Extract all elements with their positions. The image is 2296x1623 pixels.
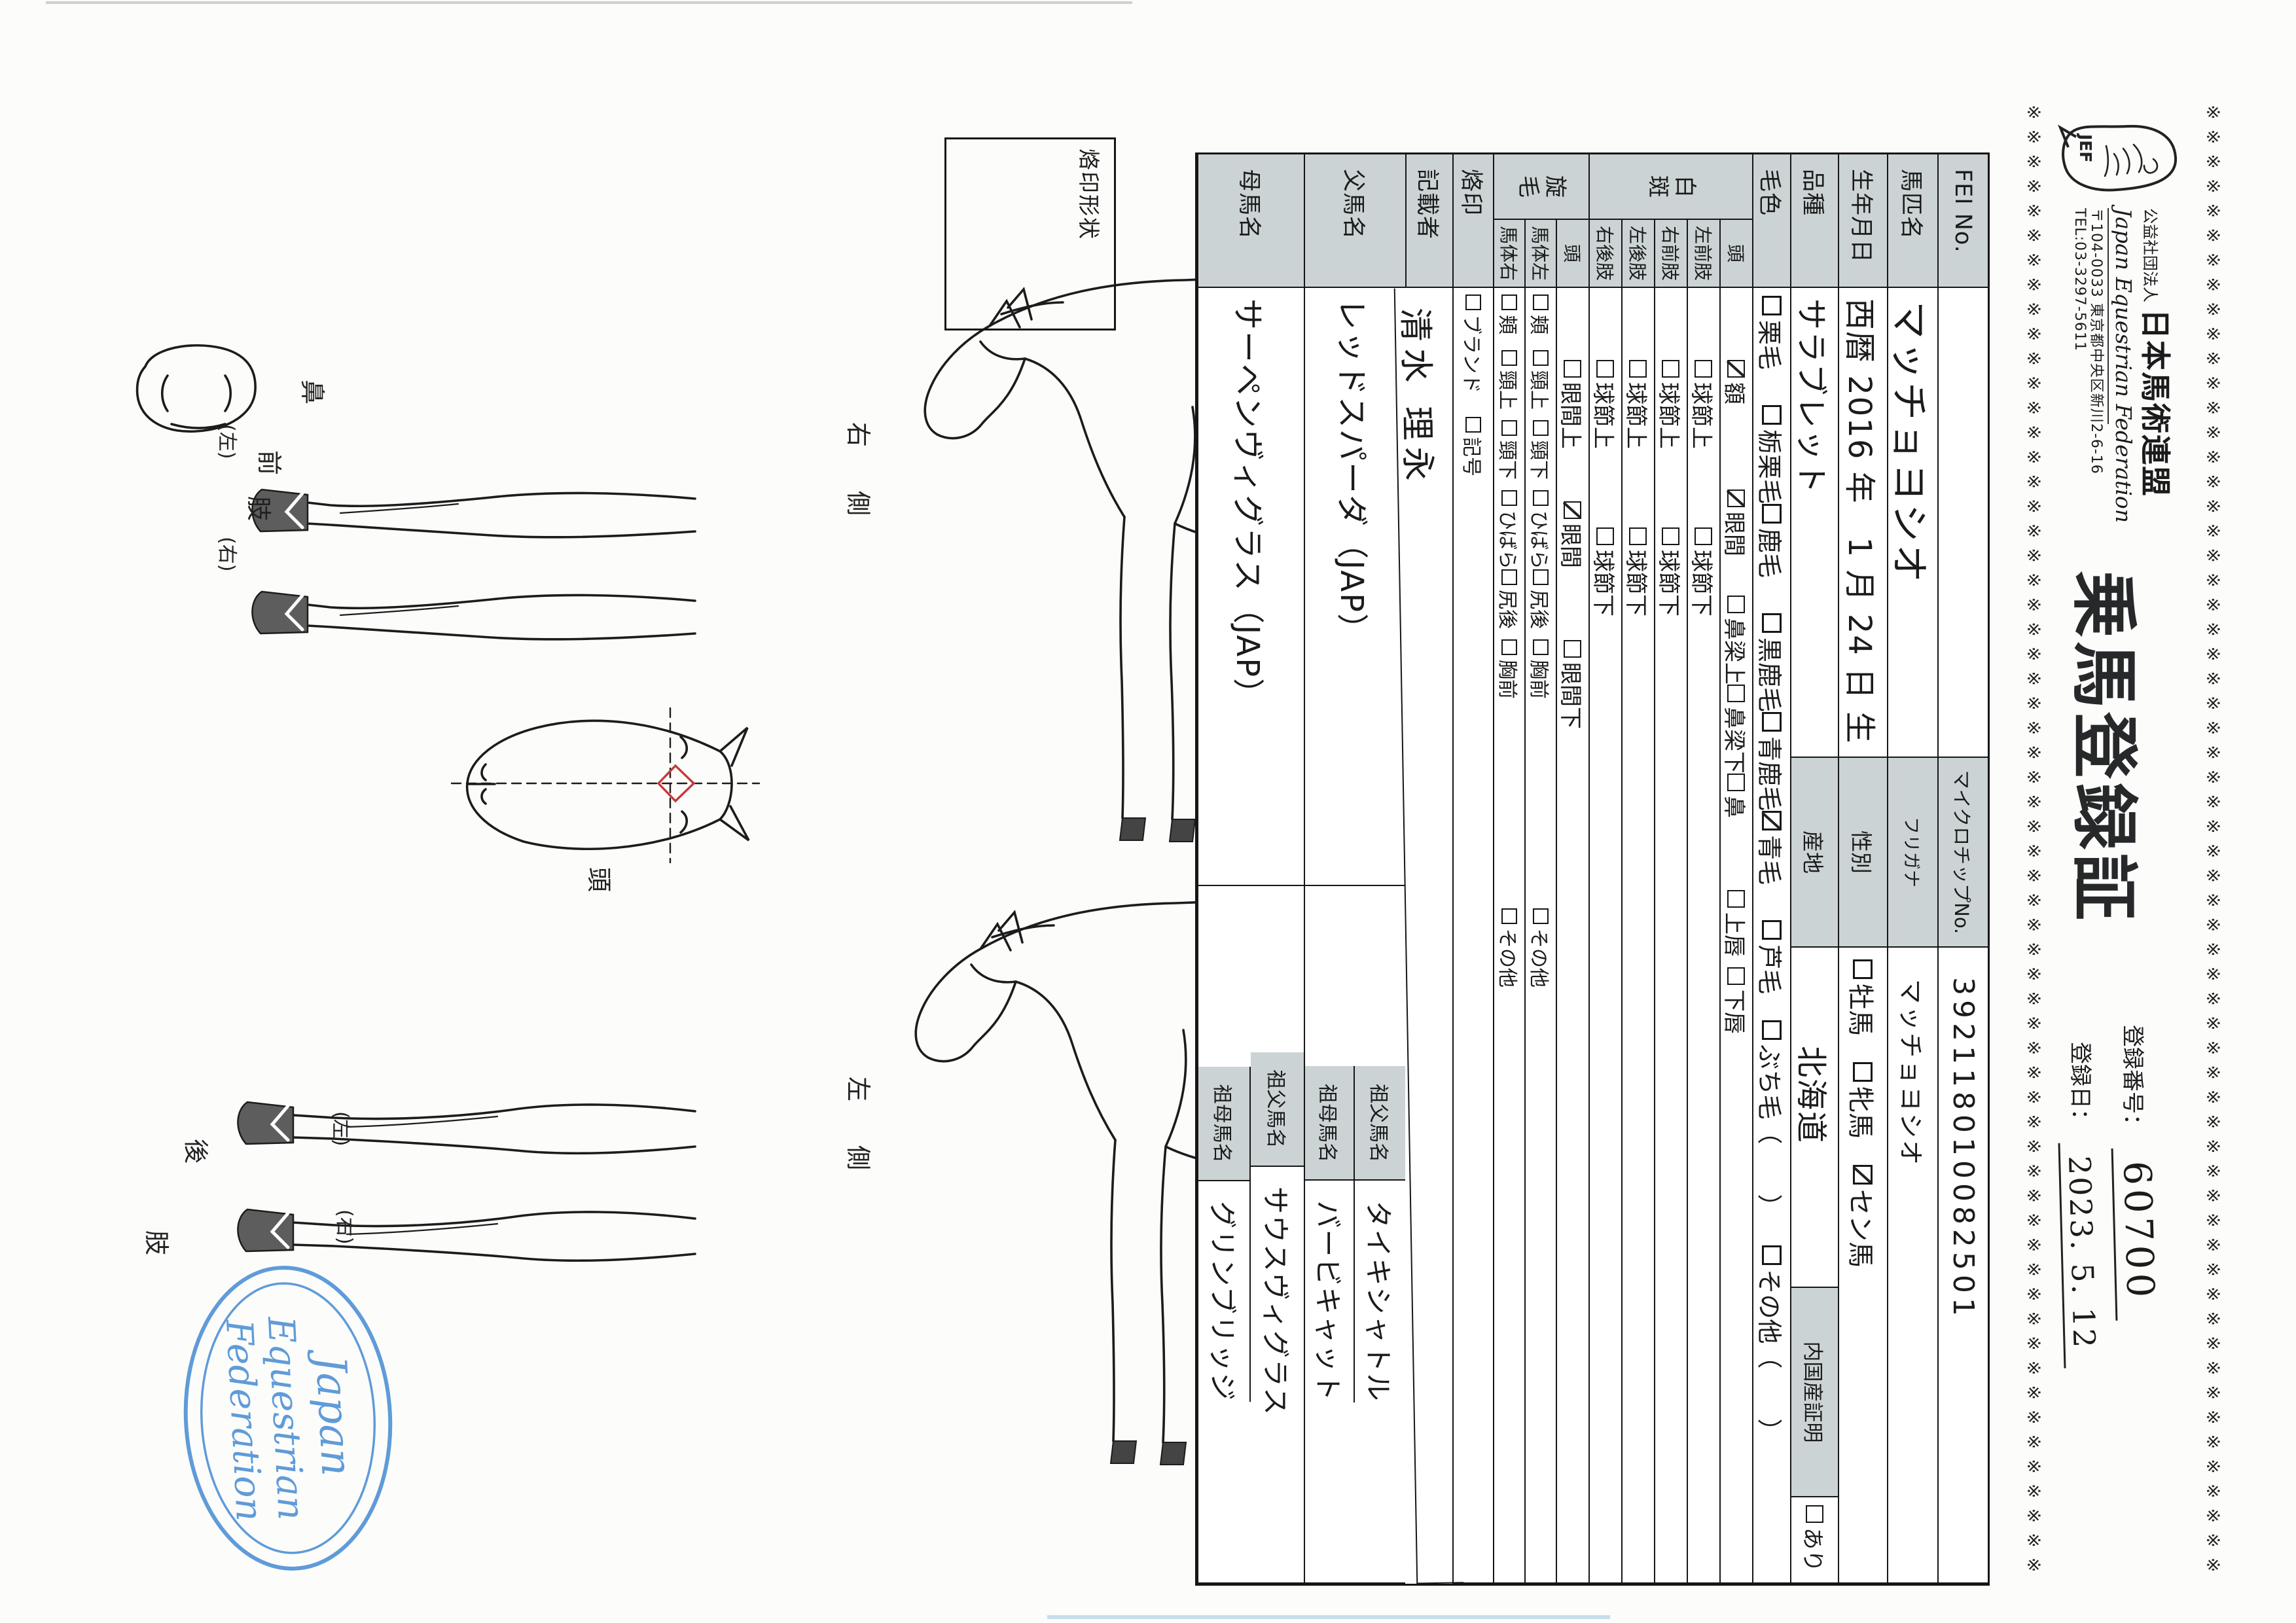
horse-name-sublabel-1: フリガナ xyxy=(1887,758,1937,948)
checkbox-option-ひばら: ひばら xyxy=(1526,490,1555,569)
diagram-label-後: 後 xyxy=(180,1139,216,1164)
checkbox-option-牝馬: 牝馬 xyxy=(1844,1062,1882,1139)
checkbox-unchecked xyxy=(1533,420,1549,436)
table-row-white-marks-head: 頭額眼間鼻梁上鼻梁下鼻上唇下唇 xyxy=(1719,154,1752,1584)
dam-bottom-value: グリンブリッジ xyxy=(1198,1181,1251,1402)
table-row-recorder: 記載者清水 理永 xyxy=(1405,154,1452,1584)
table-row-white-marks-right-fore: 右前肢球節上球節下 xyxy=(1654,154,1687,1584)
checkbox-checked xyxy=(1762,811,1782,830)
org-address: 〒104-0033 東京都中央区新川2-6-16 xyxy=(2087,208,2104,523)
checkbox-unchecked xyxy=(1728,596,1746,613)
checkbox-option-球節下: 球節下 xyxy=(1655,527,1687,616)
row-label-coat-color: 毛色 xyxy=(1752,154,1790,288)
header-rule xyxy=(2108,208,2109,424)
checkbox-option-眼間上: 眼間上 xyxy=(1557,360,1589,449)
breed-sublabel-3: 内国産証明 xyxy=(1790,1288,1838,1497)
checkbox-unchecked xyxy=(1762,296,1782,315)
table-row-breed: 品種サラブレット産地北海道内国産証明あり xyxy=(1790,154,1838,1584)
breed-sublabel-1: 産地 xyxy=(1790,758,1838,948)
checkbox-option-鹿毛: 鹿毛 xyxy=(1754,504,1790,578)
table-row-dam: 母馬名サーペンヴィグラス（JAP）祖父馬名サウスヴィグラス祖母馬名グリンブリッジ xyxy=(1197,154,1304,1584)
checkbox-option-青鹿毛: 青鹿毛 xyxy=(1754,712,1790,811)
branding-shape-label: 烙印形状 xyxy=(1075,149,1106,240)
checkbox-unchecked xyxy=(1501,490,1517,506)
row-label-whorl-body-right: 馬体右 xyxy=(1493,220,1524,288)
diagram-label-(右): (右) xyxy=(332,1209,361,1244)
checkbox-option-ブランド: ブランド xyxy=(1459,294,1488,393)
org-name-en: Japan Equestrian Federation xyxy=(2111,208,2136,523)
diagram-label-頭: 頭 xyxy=(583,867,619,892)
white-marks-left-hind-options: 球節上球節下 xyxy=(1621,288,1654,1584)
checkbox-unchecked xyxy=(1762,504,1782,524)
row-label-whorl-body-left: 馬体左 xyxy=(1524,220,1556,288)
checkbox-unchecked xyxy=(1501,908,1517,924)
checkbox-unchecked xyxy=(1728,774,1746,791)
row-label-fei-no: FEI No. xyxy=(1937,154,1988,288)
checkbox-unchecked xyxy=(1728,890,1746,908)
row-label-white-marks-left-hind: 左後肢 xyxy=(1621,220,1654,288)
diagram-label-側: 側 xyxy=(842,491,878,516)
certificate-portrait-content: ※※※※※※※※※※※※※※※※※※※※※※※※※※※※※※※※※※※※※※※※… xyxy=(0,0,2296,1623)
checkbox-unchecked xyxy=(1806,1505,1823,1523)
checkbox-option-栗毛: 栗毛 xyxy=(1754,296,1790,370)
table-row-whorl-body-right: 馬体右頬頸上頸下ひばら尻後胸前その他 xyxy=(1493,154,1524,1584)
row-label-white-marks-left-fore: 左前肢 xyxy=(1687,220,1719,288)
checkbox-unchecked xyxy=(1762,712,1782,732)
table-row-birth-date: 生年月日西暦 2016 年 1 月 24 日 生性別牡馬牝馬セン馬 xyxy=(1838,154,1887,1584)
checkbox-option-黒鹿毛: 黒鹿毛 xyxy=(1754,613,1790,712)
org-name: 日本馬術連盟 xyxy=(2138,309,2173,497)
checkbox-option-球節上: 球節上 xyxy=(1688,360,1720,449)
checkbox-checked xyxy=(1854,1165,1873,1185)
diagram-label-前: 前 xyxy=(253,450,289,475)
fei-no-empty-cell xyxy=(1937,288,1988,758)
checkbox-checked xyxy=(1728,360,1746,378)
checkbox-option-尻後: 尻後 xyxy=(1526,569,1555,629)
dam-top-value: サウスヴィグラス xyxy=(1251,1167,1304,1416)
checkbox-option-セン馬: セン馬 xyxy=(1844,1165,1882,1268)
table-row-whorl-body-left: 馬体左頬頸上頸下ひばら尻後胸前その他 xyxy=(1524,154,1556,1584)
registration-number-value: 60700 xyxy=(2111,1147,2164,1320)
row-label-breed: 品種 xyxy=(1790,154,1838,288)
dam-top-sublabel: 祖父馬名 xyxy=(1251,1052,1304,1167)
jef-logo-text: JEF xyxy=(2076,133,2095,162)
checkbox-unchecked xyxy=(1762,613,1782,633)
checkbox-option-球節上: 球節上 xyxy=(1623,360,1655,449)
checkbox-unchecked xyxy=(1501,294,1517,310)
row-label-white-marks-head: 頭 xyxy=(1719,220,1752,288)
checkbox-option-その他（ ）: その他（ ） xyxy=(1754,1245,1790,1444)
checkbox-option-上唇: 上唇 xyxy=(1721,890,1753,957)
checkbox-unchecked xyxy=(1728,967,1746,985)
whorl-head-options: 眼間上眼間眼間下 xyxy=(1556,288,1588,1584)
sire-bottom-sublabel: 祖母馬名 xyxy=(1305,1066,1355,1181)
checkbox-option-頸上: 頸上 xyxy=(1526,350,1555,410)
checkbox-unchecked xyxy=(1597,527,1615,545)
checkbox-option-胸前: 胸前 xyxy=(1526,639,1555,699)
row-label-brand: 烙印 xyxy=(1452,154,1493,288)
birth-date-sublabel-1: 性別 xyxy=(1838,758,1887,948)
checkbox-option-球節下: 球節下 xyxy=(1623,527,1655,616)
registration-date-value: 2023. 5. 12 xyxy=(2058,1142,2103,1368)
sire-pedigree-split: 祖父馬名タイキシャトル祖母馬名バービキャット xyxy=(1304,886,1405,1584)
checkbox-option-あり: あり xyxy=(1799,1505,1831,1572)
birth-date-options: 牡馬牝馬セン馬 xyxy=(1838,948,1887,1584)
checkbox-unchecked xyxy=(1501,639,1517,655)
table-row-white-marks-right-hind: 右後肢球節上球節下 xyxy=(1588,154,1621,1584)
checkbox-option-牡馬: 牡馬 xyxy=(1844,959,1882,1036)
registration-number-label: 登録番号： xyxy=(2113,1025,2151,1136)
registration-date-line: 登録日： 2023. 5. 12 xyxy=(2061,1042,2100,1368)
coat-color-options: 栗毛栃栗毛鹿毛黒鹿毛青鹿毛青毛芦毛ぶち毛（ ）その他（ ） xyxy=(1752,288,1790,1584)
sire-bottom-value: バービキャット xyxy=(1305,1181,1355,1402)
checkbox-option-頸下: 頸下 xyxy=(1495,420,1524,480)
checkbox-option-頸上: 頸上 xyxy=(1495,350,1524,410)
org-tel: TEL:03-3297-5611 xyxy=(2071,208,2087,523)
checkbox-option-頬: 頬 xyxy=(1495,294,1524,334)
checkbox-option-鼻梁下: 鼻梁下 xyxy=(1721,685,1753,774)
checkbox-option-下唇: 下唇 xyxy=(1721,967,1753,1034)
table-row-coat-color: 毛色栗毛栃栗毛鹿毛黒鹿毛青鹿毛青毛芦毛ぶち毛（ ）その他（ ） xyxy=(1752,154,1790,1584)
dam-pedigree-split: 祖父馬名サウスヴィグラス祖母馬名グリンブリッジ xyxy=(1197,886,1304,1584)
perforation-line-top: ※※※※※※※※※※※※※※※※※※※※※※※※※※※※※※※※※※※※※※※※… xyxy=(2202,105,2223,1584)
checkbox-unchecked xyxy=(1854,959,1873,979)
breed-options: あり xyxy=(1790,1497,1838,1584)
diagram-label-(左): (左) xyxy=(215,424,243,459)
checkbox-option-芦毛: 芦毛 xyxy=(1754,920,1790,994)
certificate-title: 乗馬登録証 xyxy=(2061,571,2157,924)
checkbox-option-鼻: 鼻 xyxy=(1721,774,1753,818)
white-marks-right-hind-options: 球節上球節下 xyxy=(1588,288,1621,1584)
checkbox-option-額: 額 xyxy=(1721,360,1753,404)
registration-date-label: 登録日： xyxy=(2061,1042,2098,1131)
whorl-body-right-options: 頬頸上頸下ひばら尻後胸前その他 xyxy=(1493,288,1524,1584)
checkbox-unchecked xyxy=(1533,908,1549,924)
jef-logo: JEF xyxy=(2055,120,2179,196)
checkbox-option-球節下: 球節下 xyxy=(1590,527,1622,616)
diagram-label-(左): (左) xyxy=(329,1111,357,1146)
table-row-fei-no: FEI No.マイクロチップNo.392118010082501 xyxy=(1937,154,1988,1584)
stamp-line-1: Japan xyxy=(306,1347,361,1478)
sire-value: レッドスパーダ（JAP） xyxy=(1304,288,1405,886)
row-label-whorl-head: 頭 xyxy=(1556,220,1588,288)
dam-value: サーペンヴィグラス（JAP） xyxy=(1197,288,1304,886)
checkbox-unchecked xyxy=(1597,360,1615,378)
checkbox-unchecked xyxy=(1533,639,1549,655)
checkbox-option-眼間: 眼間 xyxy=(1557,501,1589,568)
checkbox-option-球節下: 球節下 xyxy=(1688,527,1720,616)
checkbox-option-頬: 頬 xyxy=(1526,294,1555,334)
checkbox-unchecked xyxy=(1533,569,1549,585)
perforation-line-bottom: ※※※※※※※※※※※※※※※※※※※※※※※※※※※※※※※※※※※※※※※※… xyxy=(2023,105,2043,1584)
checkbox-unchecked xyxy=(1564,640,1582,658)
fei-no-value: 392118010082501 xyxy=(1937,948,1988,1584)
checkbox-option-栃栗毛: 栃栗毛 xyxy=(1754,405,1790,504)
table-row-sire: 父馬名レッドスパーダ（JAP）祖父馬名タイキシャトル祖母馬名バービキャット xyxy=(1304,154,1405,1584)
checkbox-unchecked xyxy=(1762,920,1782,940)
horse-data-table: FEI No.マイクロチップNo.392118010082501馬匹名マッチョヨ… xyxy=(1195,152,1990,1586)
white-marks-right-fore-options: 球節上球節下 xyxy=(1654,288,1687,1584)
white-marks-head-options: 額眼間鼻梁上鼻梁下鼻上唇下唇 xyxy=(1719,288,1752,1584)
checkbox-option-胸前: 胸前 xyxy=(1495,639,1524,699)
dam-bottom-sublabel: 祖母馬名 xyxy=(1198,1067,1251,1181)
diagram-label-鼻: 鼻 xyxy=(296,380,332,404)
diagram-label-肢: 肢 xyxy=(141,1230,177,1255)
checkbox-option-頸下: 頸下 xyxy=(1526,420,1555,480)
checkbox-unchecked xyxy=(1762,1020,1782,1040)
checkbox-option-青毛: 青毛 xyxy=(1754,811,1790,885)
checkbox-option-その他: その他 xyxy=(1526,908,1555,988)
checkbox-unchecked xyxy=(1762,405,1782,425)
scanned-certificate-page: ※※※※※※※※※※※※※※※※※※※※※※※※※※※※※※※※※※※※※※※※… xyxy=(0,0,2296,1623)
diagram-label-右: 右 xyxy=(842,422,878,447)
sire-top-value: タイキシャトル xyxy=(1355,1181,1406,1402)
checkbox-unchecked xyxy=(1533,490,1549,506)
row-label-birth-date: 生年月日 xyxy=(1838,154,1887,288)
checkbox-option-眼間下: 眼間下 xyxy=(1557,640,1589,729)
checkbox-option-その他: その他 xyxy=(1495,908,1524,988)
checkbox-checked xyxy=(1564,501,1582,519)
row-label-sire: 父馬名 xyxy=(1304,154,1405,288)
diagram-label-左: 左 xyxy=(842,1077,878,1101)
checkbox-unchecked xyxy=(1854,1062,1873,1082)
table-row-horse-name: 馬匹名マッチョヨシオフリガナマッチョヨシオ xyxy=(1887,154,1937,1584)
row-label-horse-name: 馬匹名 xyxy=(1887,154,1937,288)
white-marks-left-fore-options: 球節上球節下 xyxy=(1687,288,1719,1584)
checkbox-option-鼻梁上: 鼻梁上 xyxy=(1721,596,1753,685)
checkbox-checked xyxy=(1728,490,1746,507)
birth-date-value: 西暦 2016 年 1 月 24 日 生 xyxy=(1838,288,1887,758)
checkbox-unchecked xyxy=(1465,417,1481,433)
checkbox-unchecked xyxy=(1662,360,1680,378)
federation-stamp: Japan Equestrian Federation xyxy=(177,1258,399,1578)
checkbox-unchecked xyxy=(1501,420,1517,436)
checkbox-option-眼間: 眼間 xyxy=(1721,490,1753,556)
whorl-body-left-options: 頬頸上頸下ひばら尻後胸前その他 xyxy=(1524,288,1556,1584)
checkbox-unchecked xyxy=(1695,360,1713,378)
branding-shape-box: 烙印形状 xyxy=(944,137,1116,330)
table-row-whorl-head: 頭眼間上眼間眼間下 xyxy=(1556,154,1588,1584)
checkbox-unchecked xyxy=(1465,294,1481,310)
horse-name-value: マッチョヨシオ xyxy=(1887,288,1937,758)
diagram-label-(右): (右) xyxy=(215,537,243,571)
checkbox-unchecked xyxy=(1630,527,1647,545)
breed-value: 北海道 xyxy=(1790,948,1838,1288)
checkbox-unchecked xyxy=(1501,569,1517,585)
checkbox-unchecked xyxy=(1695,527,1713,545)
checkbox-option-記号: 記号 xyxy=(1459,417,1488,476)
table-row-white-marks-left-hind: 左後肢球節上球節下 xyxy=(1621,154,1654,1584)
diagram-label-側: 側 xyxy=(842,1145,878,1170)
checkbox-option-ひばら: ひばら xyxy=(1495,490,1524,569)
diagram-label-肢: 肢 xyxy=(243,496,279,521)
checkbox-unchecked xyxy=(1762,1245,1782,1265)
checkbox-option-ぶち毛（ ）: ぶち毛（ ） xyxy=(1754,1020,1790,1219)
checkbox-unchecked xyxy=(1630,360,1647,378)
row-label-white-marks-right-hind: 右後肢 xyxy=(1588,220,1621,288)
checkbox-option-球節上: 球節上 xyxy=(1655,360,1687,449)
checkbox-unchecked xyxy=(1533,350,1549,366)
org-type: 公益社団法人 xyxy=(2141,208,2159,302)
checkbox-unchecked xyxy=(1662,527,1680,545)
row-label-white-marks-right-fore: 右前肢 xyxy=(1654,220,1687,288)
checkbox-unchecked xyxy=(1501,350,1517,366)
horse-name-value: マッチョヨシオ xyxy=(1887,948,1937,1584)
federation-header: 公益社団法人日本馬術連盟 Japan Equestrian Federation… xyxy=(2071,208,2172,523)
sire-top-sublabel: 祖父馬名 xyxy=(1355,1066,1406,1181)
fei-no-sublabel-1: マイクロチップNo. xyxy=(1937,758,1988,948)
checkbox-unchecked xyxy=(1728,685,1746,702)
checkbox-option-球節上: 球節上 xyxy=(1590,360,1622,449)
checkbox-unchecked xyxy=(1564,360,1582,378)
checkbox-unchecked xyxy=(1533,294,1549,310)
registration-number-line: 登録番号： 60700 xyxy=(2113,1025,2161,1320)
row-label-recorder: 記載者 xyxy=(1405,154,1452,288)
row-label-dam: 母馬名 xyxy=(1197,154,1304,288)
checkbox-option-尻後: 尻後 xyxy=(1495,569,1524,629)
breed-value: サラブレット xyxy=(1790,288,1838,758)
table-row-white-marks-left-fore: 左前肢球節上球節下 xyxy=(1687,154,1719,1584)
